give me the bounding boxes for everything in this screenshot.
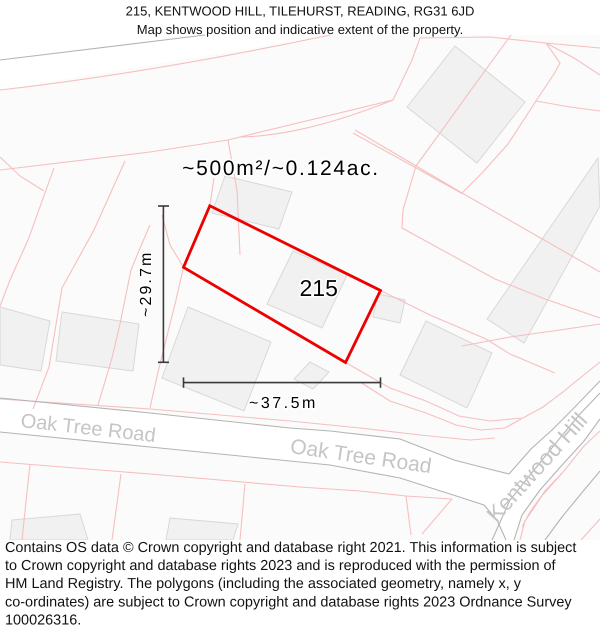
svg-text:HM Land Registry. The polygons: HM Land Registry. The polygons (includin…	[5, 576, 522, 592]
svg-text:215: 215	[300, 275, 338, 301]
svg-text:215, KENTWOOD HILL, TILEHURST,: 215, KENTWOOD HILL, TILEHURST, READING, …	[126, 4, 475, 19]
svg-text:~500m²/~0.124ac.: ~500m²/~0.124ac.	[182, 157, 380, 180]
svg-text:Map shows position and indicat: Map shows position and indicative extent…	[137, 22, 463, 37]
svg-text:~29.7m: ~29.7m	[138, 251, 155, 317]
svg-text:to Crown copyright and databas: to Crown copyright and database rights 2…	[5, 558, 557, 574]
svg-text:Contains OS data © Crown copyr: Contains OS data © Crown copyright and d…	[5, 540, 576, 556]
svg-text:~37.5m: ~37.5m	[249, 395, 318, 412]
svg-text:100026316.: 100026316.	[5, 613, 81, 625]
svg-text:co-ordinates) are subject to C: co-ordinates) are subject to Crown copyr…	[5, 595, 572, 611]
